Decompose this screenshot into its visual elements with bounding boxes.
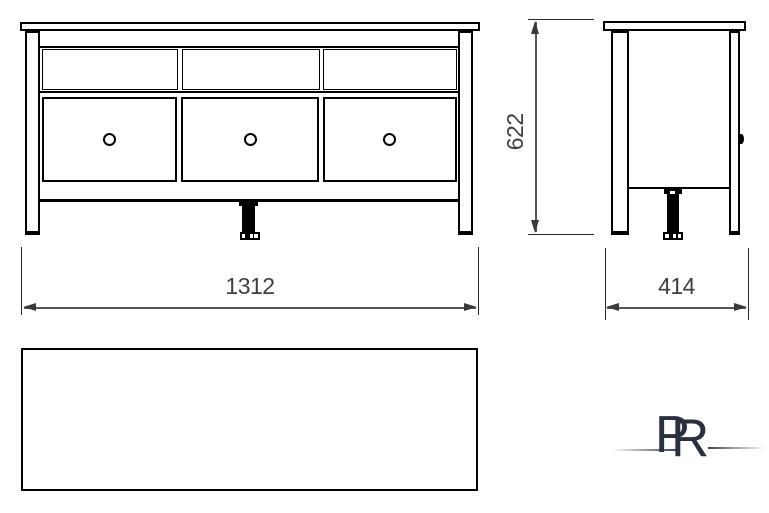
dimension-line xyxy=(607,307,746,309)
logo-right-line xyxy=(708,447,766,449)
arrowhead-icon xyxy=(531,220,539,233)
side-center-foot-notch xyxy=(670,191,675,195)
side-center-foot-cap xyxy=(663,232,683,240)
drawing-canvas: 1312 622 414 P R xyxy=(0,0,769,513)
dimension-line xyxy=(535,22,537,232)
shelf-compartment xyxy=(182,49,321,90)
drawer-knob-icon xyxy=(103,133,116,146)
front-mid-rail-line xyxy=(40,91,458,93)
front-center-foot-stem xyxy=(242,202,255,232)
drawer xyxy=(42,97,177,183)
arrowhead-icon xyxy=(464,303,477,311)
extension-line xyxy=(528,234,594,235)
shelf-compartment xyxy=(323,49,457,90)
foot-cap-detail xyxy=(669,234,674,239)
shelf-compartment xyxy=(42,49,178,90)
logo-letter-r: R xyxy=(671,412,709,465)
side-center-foot-stem xyxy=(667,189,679,232)
drawer xyxy=(323,97,458,183)
foot-cap-detail xyxy=(245,234,250,239)
foot-cap-detail xyxy=(676,234,678,239)
dimension-line xyxy=(24,307,476,309)
dim-width-label: 1312 xyxy=(150,273,350,301)
arrowhead-icon xyxy=(531,21,539,34)
arrowhead-icon xyxy=(606,303,619,311)
extension-line xyxy=(478,247,479,315)
arrowhead-icon xyxy=(23,303,36,311)
extension-line xyxy=(528,19,594,20)
top-view-outline xyxy=(21,348,478,491)
front-right-leg xyxy=(458,31,473,235)
side-knob-icon xyxy=(739,134,744,144)
drawer-knob-icon xyxy=(244,133,257,146)
front-tabletop xyxy=(20,22,480,31)
foot-cap-detail xyxy=(253,234,255,239)
front-shelf-top-line xyxy=(40,46,458,48)
arrowhead-icon xyxy=(734,303,747,311)
front-left-leg xyxy=(25,31,40,235)
front-center-foot-cap xyxy=(240,232,260,240)
side-tabletop xyxy=(603,21,746,31)
side-front-leg xyxy=(611,31,629,235)
drawer xyxy=(181,97,319,183)
dim-height-label: 622 xyxy=(502,96,530,168)
extension-line xyxy=(748,248,749,320)
drawer-knob-icon xyxy=(383,133,396,146)
side-back-leg xyxy=(729,31,740,235)
dim-depth-label: 414 xyxy=(606,273,747,301)
